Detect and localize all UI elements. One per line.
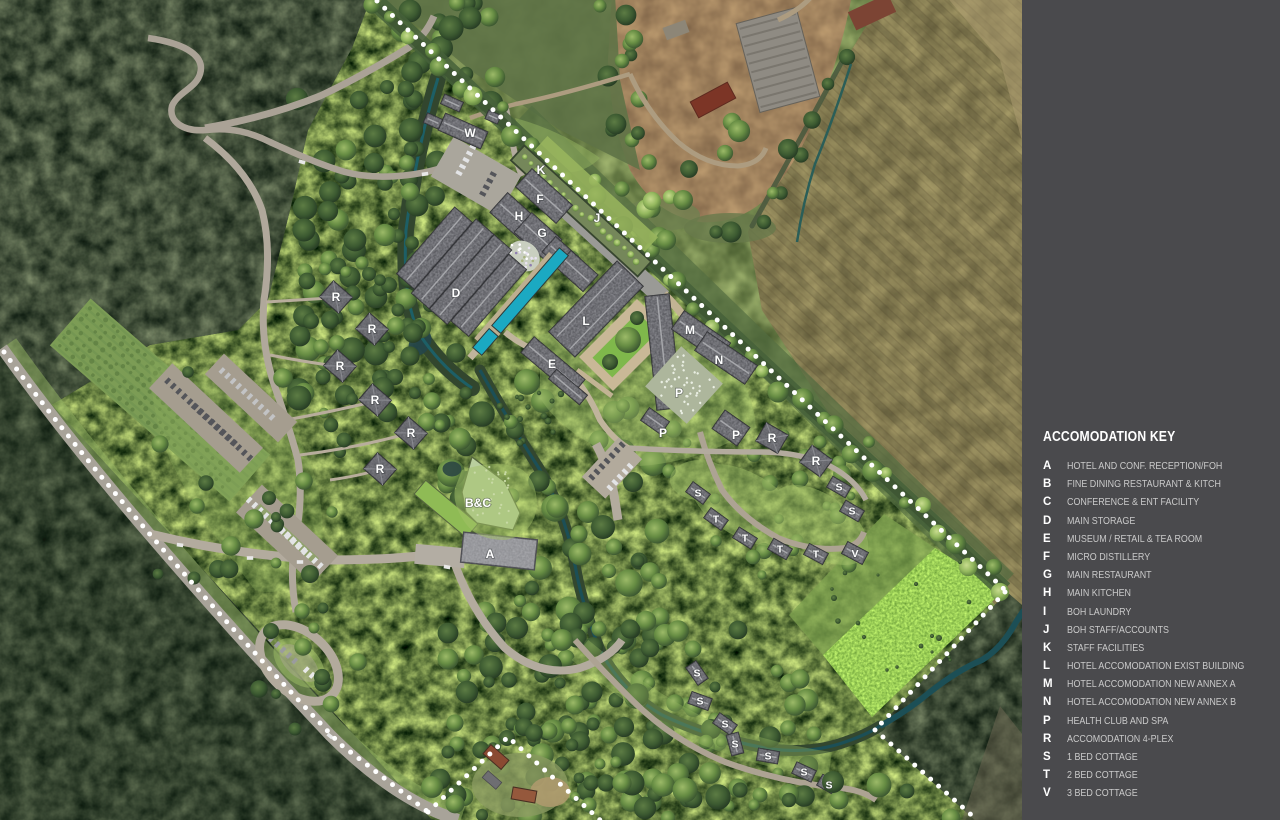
- svg-text:P: P: [675, 386, 683, 400]
- svg-text:S: S: [696, 696, 703, 708]
- svg-text:T: T: [777, 544, 784, 556]
- svg-text:S: S: [694, 488, 701, 500]
- svg-text:R: R: [332, 290, 341, 304]
- svg-text:B&C: B&C: [465, 496, 491, 510]
- svg-text:D: D: [452, 286, 461, 300]
- svg-text:S: S: [800, 767, 807, 779]
- svg-text:V: V: [851, 548, 858, 560]
- svg-text:S: S: [848, 506, 855, 518]
- svg-text:T: T: [742, 533, 749, 545]
- svg-text:S: S: [731, 739, 738, 751]
- svg-text:S: S: [825, 780, 832, 792]
- svg-text:R: R: [371, 393, 380, 407]
- svg-text:A: A: [486, 547, 495, 561]
- svg-text:S: S: [764, 751, 771, 763]
- svg-text:G: G: [537, 226, 546, 240]
- svg-text:E: E: [548, 357, 556, 371]
- svg-text:P: P: [732, 428, 740, 442]
- svg-text:K: K: [537, 163, 546, 177]
- svg-text:S: S: [835, 482, 842, 494]
- svg-text:L: L: [582, 314, 589, 328]
- svg-text:T: T: [813, 549, 820, 561]
- svg-text:P: P: [659, 426, 667, 440]
- svg-text:N: N: [715, 353, 724, 367]
- svg-text:J: J: [594, 211, 601, 225]
- svg-text:H: H: [515, 209, 524, 223]
- svg-text:T: T: [713, 514, 720, 526]
- svg-text:R: R: [812, 454, 821, 468]
- svg-text:M: M: [685, 323, 695, 337]
- svg-text:R: R: [407, 426, 416, 440]
- svg-text:R: R: [768, 431, 777, 445]
- svg-text:R: R: [368, 322, 377, 336]
- svg-text:W: W: [464, 126, 476, 140]
- svg-text:R: R: [336, 359, 345, 373]
- svg-text:F: F: [536, 192, 543, 206]
- svg-text:R: R: [376, 462, 385, 476]
- svg-text:S: S: [721, 719, 728, 731]
- svg-text:S: S: [693, 668, 700, 680]
